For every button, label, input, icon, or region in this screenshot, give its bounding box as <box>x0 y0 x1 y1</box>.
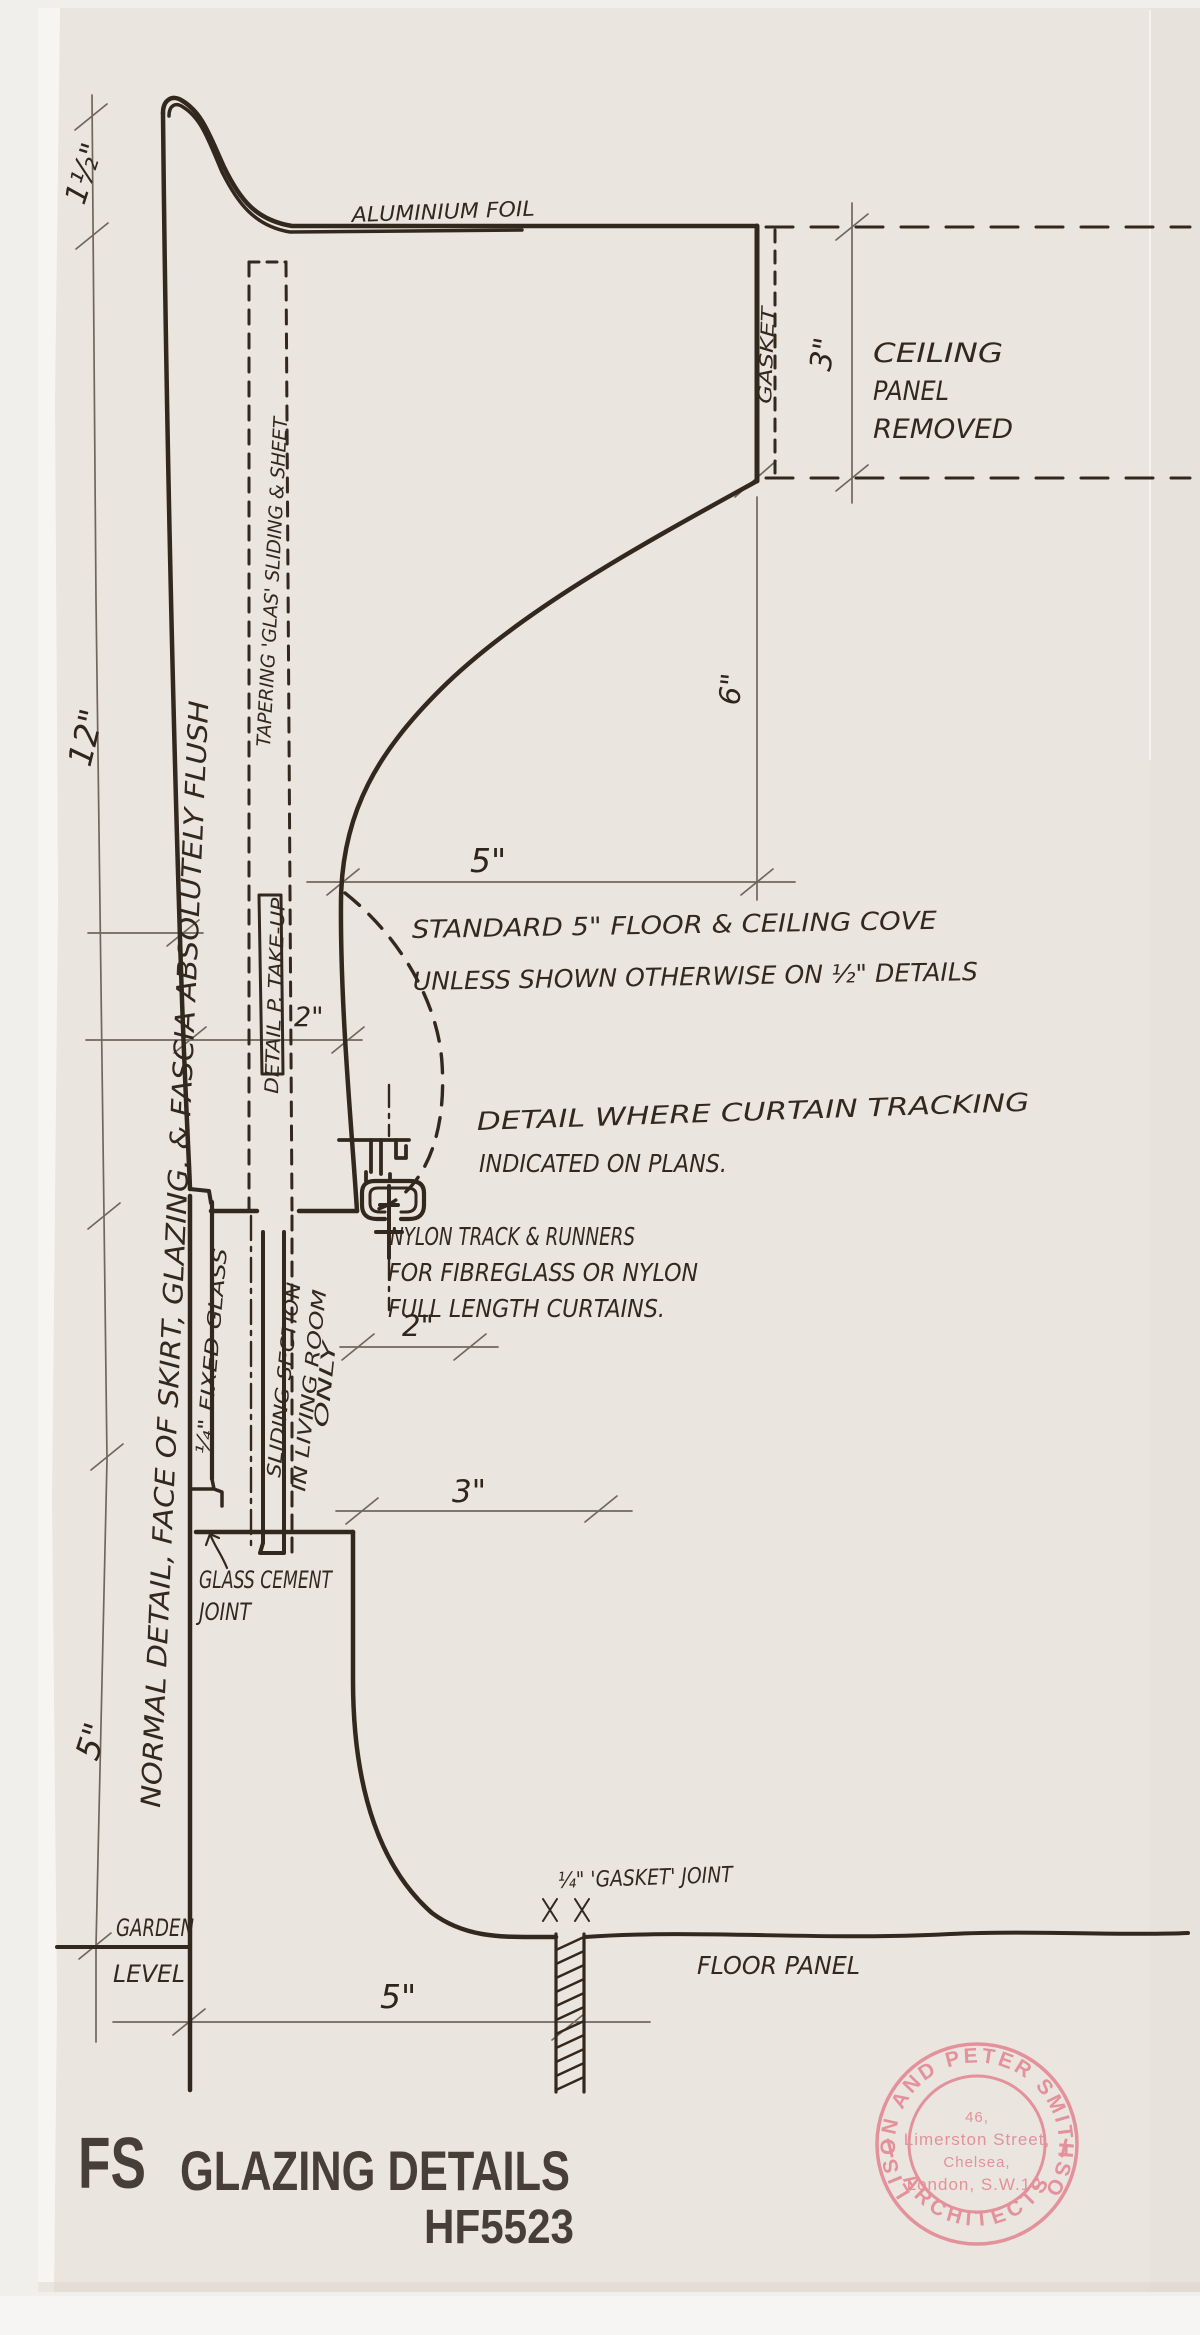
note-curtain-2: INDICATED ON PLANS. <box>479 1149 727 1178</box>
label-ceiling-3: REMOVED <box>873 414 1013 445</box>
dim-cove-width: 5" <box>470 841 506 880</box>
stamp-address-2: Limerston Street, <box>904 2130 1050 2149</box>
dim-fascia-depth: 2" <box>294 1002 324 1033</box>
label-garden: GARDEN <box>116 1914 194 1942</box>
dim-track-offset: 2" <box>402 1309 434 1343</box>
drawing-canvas: ALUMINIUM FOIL GASKET CEILING PANEL REMO… <box>0 0 1200 2335</box>
title-number: HF5523 <box>424 2201 574 2254</box>
label-gasket-vertical: GASKET <box>755 304 779 404</box>
title-series: FS <box>78 2124 146 2204</box>
note-nylon-1: NYLON TRACK & RUNNERS <box>390 1222 635 1251</box>
label-ceiling-1: CEILING <box>873 338 1003 369</box>
dim-floor-width: 5" <box>380 1977 416 2016</box>
drawing-sheet: ALUMINIUM FOIL GASKET CEILING PANEL REMO… <box>0 0 1200 2335</box>
dim-skirt-depth: 3" <box>452 1474 486 1510</box>
note-nylon-2: FOR FIBREGLASS OR NYLON <box>388 1258 698 1287</box>
label-glass-cement-1: GLASS CEMENT <box>199 1566 334 1594</box>
label-floor-panel: FLOOR PANEL <box>697 1951 860 1980</box>
dim-ceiling-gap: 3" <box>803 335 843 373</box>
label-glass-cement-2: JOINT <box>196 1598 253 1626</box>
title-name: GLAZING DETAILS <box>180 2139 570 2202</box>
dim-cove-rise: 6" <box>712 672 749 707</box>
label-level: LEVEL <box>113 1960 185 1988</box>
stamp-address-4: London, S.W.10. <box>907 2175 1048 2194</box>
label-ceiling-2: PANEL <box>873 376 949 407</box>
stamp-address-1: 46, <box>965 2109 989 2126</box>
stamp-address-3: Chelsea, <box>943 2154 1010 2171</box>
